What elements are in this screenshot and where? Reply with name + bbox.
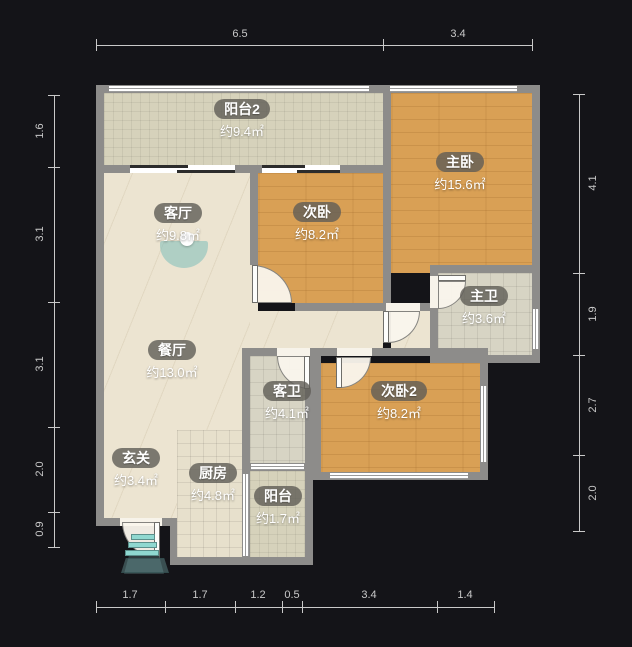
room-label-balcony-2: 阳台2 约9.4㎡ xyxy=(182,99,302,140)
dim-label-bottom-6: 1.4 xyxy=(445,589,485,601)
room-name: 次卧2 xyxy=(371,381,427,401)
window-balcony2-top xyxy=(108,85,370,93)
dim-tick xyxy=(48,547,60,548)
room-label-second-bedroom-2: 次卧2 约8.2㎡ xyxy=(339,381,459,422)
entry-step-1-icon xyxy=(131,534,155,540)
room-label-master-bedroom: 主卧 约15.6㎡ xyxy=(400,152,520,193)
door-leaf-master-bathroom xyxy=(438,275,466,281)
wall-master-divider xyxy=(383,85,391,311)
dim-label-left-3: 3.1 xyxy=(33,347,47,381)
room-label-living-room: 客厅 约9.8㎡ xyxy=(118,203,238,244)
dim-label-right-1: 4.1 xyxy=(586,166,600,200)
room-floor-corridor xyxy=(250,311,383,348)
room-area: 约4.1㎡ xyxy=(265,403,309,422)
room-name: 厨房 xyxy=(189,463,237,483)
room-name: 主卫 xyxy=(460,286,508,306)
room-area: 约1.7㎡ xyxy=(256,508,300,527)
dim-tick xyxy=(165,601,166,613)
room-name: 阳台2 xyxy=(214,99,270,119)
wall-kitchen-bottom xyxy=(170,557,313,565)
dim-label-left-2: 3.1 xyxy=(33,217,47,251)
floor-plan: 阳台2 约9.4㎡ 主卧 约15.6㎡ 客厅 约9.8㎡ 次卧 约8.2㎡ 主卫… xyxy=(0,0,632,647)
dim-line-bottom xyxy=(96,607,495,608)
dim-tick xyxy=(383,39,384,51)
window-master-top xyxy=(389,85,518,93)
dim-tick xyxy=(573,531,585,532)
doorway-guest-bathroom xyxy=(277,348,310,356)
room-area: 约8.2㎡ xyxy=(377,403,421,422)
dim-label-top-2: 3.4 xyxy=(438,28,478,40)
sliding-door-bedroom-balcony xyxy=(262,165,340,173)
room-label-second-bedroom: 次卧 约8.2㎡ xyxy=(257,202,377,243)
room-label-balcony: 阳台 约1.7㎡ xyxy=(218,486,338,527)
dim-tick xyxy=(48,167,60,168)
dim-tick xyxy=(48,427,60,428)
wall-bedroom-bottom xyxy=(295,303,390,311)
dim-tick xyxy=(573,273,585,274)
room-area: 约8.2㎡ xyxy=(295,224,339,243)
dim-label-right-3: 2.7 xyxy=(586,388,600,422)
room-name: 次卧 xyxy=(293,202,341,222)
dim-tick xyxy=(573,94,585,95)
room-area: 约13.0㎡ xyxy=(146,362,197,381)
doorway-bedroom2 xyxy=(337,348,372,356)
room-label-master-bathroom: 主卫 约3.6㎡ xyxy=(424,286,544,327)
dim-tick xyxy=(48,512,60,513)
room-area: 约15.6㎡ xyxy=(434,174,485,193)
entry-landing-icon xyxy=(121,558,169,573)
dim-tick xyxy=(437,601,438,613)
room-area: 约9.4㎡ xyxy=(220,121,264,140)
dim-tick xyxy=(532,39,533,51)
dim-tick xyxy=(96,39,97,51)
dim-tick xyxy=(302,601,303,613)
door-leaf-second-bedroom xyxy=(252,265,258,303)
room-name: 餐厅 xyxy=(148,340,196,360)
dim-tick xyxy=(573,455,585,456)
dim-tick xyxy=(235,601,236,613)
sliding-door-living-balcony xyxy=(130,165,235,173)
dim-line-right xyxy=(579,94,580,532)
wall-masterbath-top xyxy=(430,265,532,273)
room-name: 客厅 xyxy=(154,203,202,223)
entry-step-3-icon xyxy=(125,550,159,556)
room-label-guest-bathroom: 客卫 约4.1㎡ xyxy=(227,381,347,422)
dim-label-bottom-4: 0.5 xyxy=(272,589,312,601)
dim-tick xyxy=(282,601,283,613)
dim-label-left-1: 1.6 xyxy=(33,114,47,148)
dim-label-left-5: 0.9 xyxy=(33,512,47,546)
room-name: 阳台 xyxy=(254,486,302,506)
dim-label-bottom-5: 3.4 xyxy=(349,589,389,601)
dim-tick xyxy=(48,302,60,303)
room-area: 约9.8㎡ xyxy=(156,225,200,244)
room-label-dining-room: 餐厅 约13.0㎡ xyxy=(112,340,232,381)
door-leaf-master-bedroom xyxy=(383,311,389,343)
dim-tick xyxy=(96,601,97,613)
dim-tick xyxy=(48,95,60,96)
dim-label-top-1: 6.5 xyxy=(220,28,260,40)
room-area: 约3.4㎡ xyxy=(114,470,158,489)
doorway-master-bedroom xyxy=(386,303,420,311)
dim-label-right-4: 2.0 xyxy=(586,476,600,510)
room-area: 约3.6㎡ xyxy=(462,308,506,327)
room-name: 主卧 xyxy=(436,152,484,172)
dim-tick xyxy=(494,601,495,613)
dim-label-left-4: 2.0 xyxy=(33,452,47,486)
dim-label-right-2: 1.9 xyxy=(586,297,600,331)
entry-step-2-icon xyxy=(128,542,157,548)
dim-tick xyxy=(573,355,585,356)
dim-label-bottom-1: 1.7 xyxy=(110,589,150,601)
dim-line-left xyxy=(54,95,55,548)
wall-masterbath-bottom xyxy=(430,355,540,363)
window-bedroom2-right xyxy=(480,385,488,463)
dim-line-top xyxy=(96,45,533,46)
room-name: 客卫 xyxy=(263,381,311,401)
dim-label-bottom-2: 1.7 xyxy=(180,589,220,601)
window-bedroom2-bottom xyxy=(329,472,469,480)
